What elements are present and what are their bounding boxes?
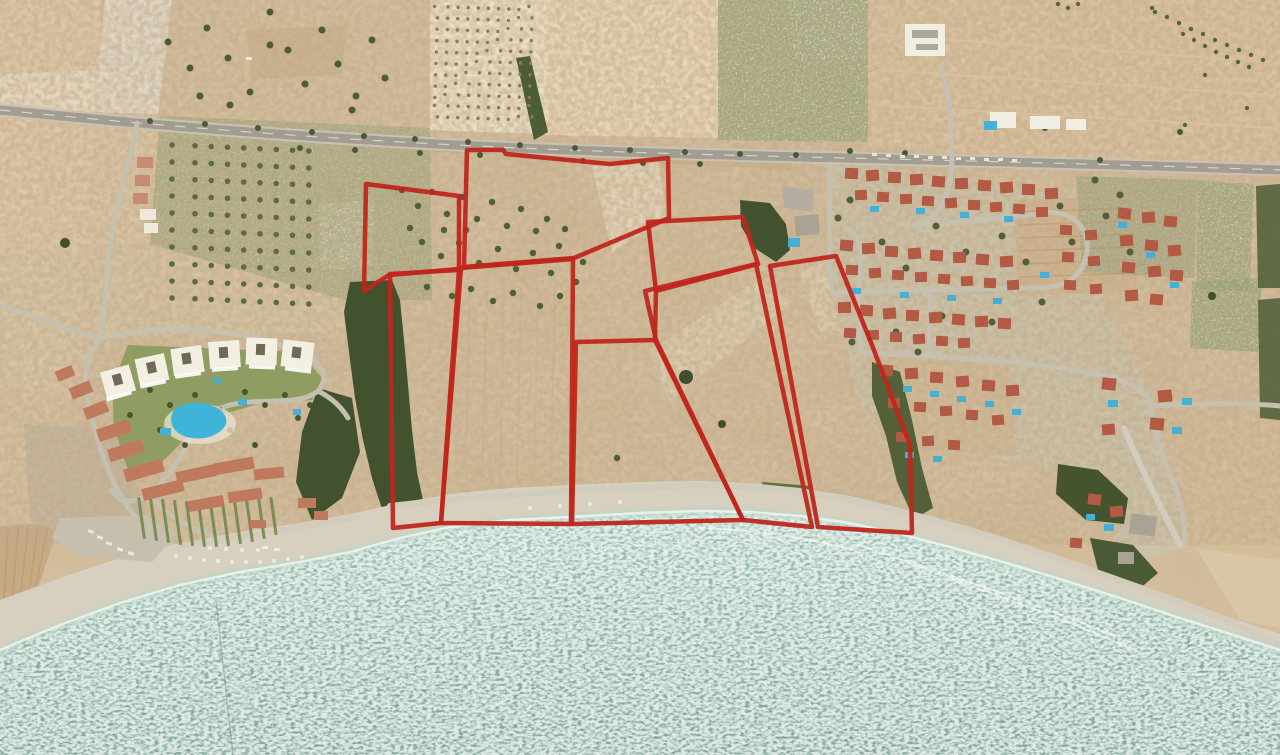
orchard-grid-top-dot [446,17,449,20]
parked-cars-highway-item [914,155,919,158]
orchard-grid-top-dot [528,84,531,87]
lone-trees-dot [1208,292,1216,300]
orchard-grid-left-dot [241,179,247,185]
side-roads [1151,404,1280,406]
orchard-grid-left-dot [257,146,263,152]
olive-trees-parcel-dot [556,243,562,249]
orchard-grid-left-dot [306,250,312,256]
tree-rows-ne-dot [1189,27,1193,31]
tree-rows-ne-dot [1237,48,1241,52]
orchard-grid-top-dot [454,74,457,77]
orchard-grid-top-dot [466,17,469,20]
village-trees-dot [1117,192,1124,199]
village-houses-item [1062,252,1075,263]
orchard-grid-top-dot [488,72,491,75]
orchard-grid-top-dot [445,51,448,54]
orchard-grid-top-dot [485,49,488,52]
orchard-grid-top-dot [517,107,520,110]
village-houses-item [1000,256,1014,268]
beach-umbrellas-dot [208,546,212,550]
orchard-grid-top-dot [455,40,458,43]
scattered-trees-nw-dot [349,107,356,114]
orchard-grid-left-dot [306,267,312,273]
village-pools-item [933,456,942,462]
village-houses-item [888,172,901,183]
tree-strip [1258,298,1280,420]
orchard-grid-top-dot [530,115,533,118]
tree-rows-ne-dot [1225,43,1229,47]
scattered-trees-nw-dot [227,102,234,109]
beach-umbrellas-dot [202,558,206,562]
village-houses-item [1036,207,1048,217]
village-houses-item [1110,505,1124,517]
village-trees-dot [999,233,1006,240]
orchard-grid-top-dot [476,117,479,120]
orchard-grid-left-dot [290,283,296,289]
village-houses-item [968,200,980,210]
orchard-grid-top-dot [476,29,479,32]
orchard-grid-left-dot [208,212,214,218]
scattered-trees-nw-dot [247,89,254,96]
orchard-grid-left-dot [192,245,198,251]
orchard-grid-left-dot [257,214,263,220]
orchard-grid-top-dot [528,96,531,99]
orchard-grid-top-dot [509,38,512,41]
resort-villa-courts-item [219,347,229,359]
orchard-grid-top-dot [456,28,459,31]
tree-rows-ne-dot [1192,38,1196,42]
village-houses-item [1168,245,1182,257]
orchard-grid-top-dot [435,50,438,53]
orchard-grid-top-dot [498,61,501,64]
village-houses-item [1150,293,1164,305]
orchard-grid-top-dot [487,94,490,97]
north-buildings-item [905,24,945,56]
orchard-grid-top-dot [466,29,469,32]
orchard-grid-left-dot [290,181,296,187]
orchard-grid-left-dot [208,246,214,252]
village-houses-item [883,308,897,320]
orchard-grid-top-dot [435,28,438,31]
village-houses-item [1164,215,1178,227]
village-houses-item [1007,280,1020,291]
orchard-grid-top-dot [436,16,439,19]
orchard-grid-left-dot [192,194,198,200]
resort-palms-dot [192,392,198,398]
village-houses-item [952,314,966,326]
orchard-grid-left-dot [290,215,296,221]
orchard-grid-top-dot [467,6,470,9]
orchard-grid-left-dot [257,180,263,186]
orchard-grid-left-dot [290,147,296,153]
village-houses-item [1006,385,1020,397]
scattered-trees-nw-dot [353,93,360,100]
roadside-trees-dot [309,129,315,135]
resort-palms-dot [295,415,301,421]
roadside-trees-dot [737,151,743,157]
orchard-grid-left-dot [225,229,231,235]
village-houses-item [929,312,943,324]
orchard-grid-left-dot [306,233,312,239]
orchard-grid-top-dot [476,40,479,43]
orchard-grid-left-dot [290,300,296,306]
orchard-grid-left-dot [241,281,247,287]
roadside-trees-dot [572,145,578,151]
orchard-grid-left-dot [273,181,279,187]
roadside-trees-dot [477,152,483,158]
olive-trees-parcel-dot [614,455,620,461]
olive-trees-parcel-dot [444,211,450,217]
orchard-grid-top-dot [488,83,491,86]
village-houses-item [915,272,927,282]
village-grey-roofs-item [1129,513,1158,536]
orchard-grid-top-dot [517,16,520,19]
beach-umbrellas-dot [188,556,192,560]
village-houses-item [1122,261,1136,273]
orchard-grid-top-dot [456,116,459,119]
roadside-trees-dot [255,125,261,131]
vineyard-texture [1196,180,1254,292]
village-pools-item [1086,514,1095,520]
orchard-grid-top-dot [446,5,449,8]
resort-terracotta-blocks-item [250,520,266,528]
village-houses-item [1064,280,1077,291]
roadside-trees-dot [627,147,633,153]
village-houses-item [958,338,970,348]
orchard-grid-top-dot [527,5,530,8]
north-buildings-item [1030,116,1060,129]
tree-rows-ne-dot [1214,50,1218,54]
tree-rows-ne-dot [1165,15,1169,19]
village-houses-item [1170,270,1184,282]
village-houses-item [913,334,926,345]
orchard-grid-top-dot [446,104,449,107]
orchard-grid-left-dot [241,264,247,270]
olive-trees-parcel-dot [530,250,536,256]
village-houses-item [844,328,857,339]
tree-strip [1256,184,1280,288]
roadside-trees-dot [465,139,471,145]
orchard-grid-left-dot [192,160,198,166]
orchard-grid-left-dot [192,211,198,217]
orchard-grid-top-dot [434,62,437,65]
village-pools-item [1170,282,1179,288]
village-houses-item [932,176,946,188]
orchard-grid-top-dot [519,61,522,64]
orchard-grid-top-dot [456,17,459,20]
village-pools-item [1118,222,1127,228]
orchard-grid-left-dot [306,182,312,188]
village-houses-item [1117,207,1131,219]
roadside-trees-dot [847,148,853,154]
scattered-trees-nw-dot [187,65,194,72]
village-trees-dot [933,223,940,230]
village-pools-item [1108,400,1118,407]
orchard-grid-left-dot [208,229,214,235]
orchard-grid-top-dot [519,50,522,53]
tree-rows-ne-dot [1203,73,1207,77]
fine-speckle [0,0,1280,545]
village-houses-item [1145,240,1159,252]
tree-rows-ne-dot [1177,21,1181,25]
orchard-grid-top-dot [477,6,480,9]
orchard-grid-top-dot [454,82,457,85]
village-pools-item [1004,216,1013,222]
side-roads [830,164,832,293]
orchard-grid-left-dot [257,282,263,288]
village-houses-item [1090,284,1103,295]
parked-cars-beach-item [274,548,280,551]
tree-rows-ne-dot [1225,55,1229,59]
resort-small-pools-item [293,409,301,415]
parked-cars-highway-item [900,155,905,158]
orchard-grid-left-dot [273,249,279,255]
orchard-grid-left-dot [273,164,279,170]
orchard-grid-top-dot [464,71,467,74]
scattered-trees-nw-dot [319,27,326,34]
village-houses-item [892,270,905,281]
olive-trees-parcel-dot [580,259,586,265]
orchard-grid-top-dot [444,73,447,76]
village-trees-dot [849,339,856,346]
orchard-grid-top-dot [467,105,470,108]
scattered-trees-nw-dot [197,93,204,100]
parked-cars-highway-item [956,157,961,160]
orchard-grid-top-dot [518,73,521,76]
village-houses-item [846,265,858,275]
orchard-grid-left-dot [225,161,231,167]
orchard-grid-left-dot [290,198,296,204]
orchard-grid-top-dot [497,117,500,120]
resort-villa-courts-item [291,346,301,358]
orchard-grid-top-dot [475,60,478,63]
orchard-grid-top-dot [488,60,491,63]
village-houses-item [885,246,898,257]
village-houses-item [976,254,990,266]
beach-umbrellas-dot [256,548,260,552]
village-houses-item [966,410,979,421]
resort-palms-dot [307,402,313,408]
orchard-grid-left-dot [169,261,175,267]
roadside-trees-dot [352,147,358,153]
village-houses-item [992,415,1005,426]
village-trees-dot [1057,203,1064,210]
village-houses-item [890,332,902,342]
orchard-grid-top-dot [529,50,532,53]
orchard-grid-left-dot [257,197,263,203]
parked-cars-highway-item [942,156,947,159]
orchard-grid-top-dot [509,50,512,53]
orchard-grid-left-dot [241,196,247,202]
village-pools-item [1104,524,1114,531]
parked-cars-beach-item [246,57,252,60]
orchard-grid-left-dot [241,162,247,168]
beach-umbrellas-dot [528,506,532,510]
orchard-grid-top-dot [506,27,509,30]
orchard-grid-left-dot [225,246,231,252]
orchard-grid-top-dot [498,83,501,86]
orchard-grid-top-dot [486,18,489,21]
orchard-grid-left-dot [306,199,312,205]
orchard-grid-left-dot [225,195,231,201]
roadside-trees-dot [147,118,153,124]
beach-umbrellas-dot [588,502,592,506]
roadside-houses-item [133,193,148,204]
village-houses-item [922,196,935,207]
olive-trees-parcel-dot [548,270,554,276]
village-pools-item [788,238,800,247]
orchard-grid-top-dot [518,95,521,98]
village-houses-item [855,190,868,201]
orchard-grid-left-dot [208,144,214,150]
orchard-grid-top-dot [444,85,447,88]
parked-cars-highway-item [872,153,877,156]
beach-umbrellas-dot [300,555,304,559]
parked-cars-highway-item [928,156,933,159]
orchard-grid-left-dot [306,165,312,171]
orchard-grid-top-dot [530,28,533,31]
olive-trees-parcel-dot [468,286,474,292]
orchard-grid-left-dot [192,177,198,183]
roadside-trees-dot [682,149,688,155]
village-houses-item [1022,184,1035,195]
village-houses-item [975,316,988,327]
orchard-grid-left-dot [241,145,247,151]
orchard-grid-top-dot [443,93,446,96]
orchard-grid-left-dot [208,161,214,167]
resort-palms-dot [182,442,188,448]
orchard-grid-top-dot [508,72,511,75]
orchard-grid-left-dot [273,300,279,306]
village-pools-item [957,396,966,402]
orchard-grid-left-dot [306,284,312,290]
orchard-grid-top-dot [433,96,436,99]
roadside-trees-dot [417,150,423,156]
orchard-grid-top-dot [465,63,468,66]
orchard-grid-top-dot [528,73,531,76]
orchard-grid-top-dot [477,94,480,97]
orchard-grid-top-dot [520,27,523,30]
village-houses-item [908,248,922,260]
orchard-grid-left-dot [290,249,296,255]
village-pools-item [993,298,1002,304]
orchard-grid-top-dot [465,51,468,54]
orchard-grid-left-dot [225,297,231,303]
scattered-trees-nw-dot [302,81,309,88]
village-houses-item [940,406,953,417]
orchard-grid-left-dot [241,230,247,236]
roadside-houses-item [137,157,153,168]
village-houses-item [955,178,968,189]
roadside-trees-dot [1097,157,1103,163]
beach-umbrellas-dot [286,557,290,561]
orchard-grid-top-dot [527,104,530,107]
orchard-grid-left-dot [169,278,175,284]
orchard-grid-top-dot [517,115,520,118]
village-houses-item [862,243,876,255]
village-trees-dot [915,349,922,356]
roadside-trees-dot [361,133,367,139]
village-houses-item [984,278,996,288]
resort-small-pools-item [238,399,247,405]
parked-cars-highway-item [886,154,891,157]
village-houses-item [930,250,944,262]
village-trees-dot [835,215,842,222]
orchard-grid-top-dot [475,52,478,55]
resort-palms-dot [167,402,173,408]
roadside-trees-dot [297,145,303,151]
olive-trees-parcel-dot [419,239,425,245]
village-houses-item [1000,182,1014,194]
beach-umbrellas-dot [174,554,178,558]
beach-umbrellas-dot [244,560,248,564]
orchard-grid-top-dot [478,71,481,74]
beach-umbrellas-dot [558,504,562,508]
olive-trees-parcel-dot [537,303,543,309]
village-trees-dot [1023,259,1030,266]
orchard-grid-top-dot [497,7,500,10]
orchard-grid-left-dot [169,227,175,233]
orchard-grid-left-dot [225,144,231,150]
orchard-grid-left-dot [169,176,175,182]
resort-villa-courts-item [181,352,191,364]
beach-umbrellas-dot [272,559,276,563]
satellite-map-image [0,0,1280,755]
olive-trees-parcel-dot [518,206,524,212]
orchard-grid-left-dot [273,232,279,238]
orchard-grid-left-dot [257,163,263,169]
tree-rows-ne-dot [1181,32,1185,36]
rubble [782,186,814,212]
village-houses-item [900,194,912,204]
vineyard-texture [1190,278,1262,352]
roadside-trees-dot [412,136,418,142]
village-trees-dot [1103,213,1110,220]
orchard-grid-left-dot [241,213,247,219]
village-houses-item [922,436,935,447]
olive-trees-parcel-dot [544,216,550,222]
village-houses-item [1120,234,1134,246]
orchard-grid-left-dot [225,280,231,286]
orchard-grid-top-dot [498,72,501,75]
orchard-grid-left-dot [192,296,198,302]
beach-umbrellas-dot [618,500,622,504]
orchard-grid-top-dot [436,115,439,118]
village-houses-item [961,276,974,287]
village-houses-item [866,170,880,182]
orchard-grid-top-dot [444,62,447,65]
orchard-grid-top-dot [486,117,489,120]
scattered-trees-nw-dot [335,61,342,68]
orchard-grid-top-dot [445,39,448,42]
orchard-grid-left-dot [290,164,296,170]
orchard-grid-top-dot [486,29,489,32]
orchard-grid-top-dot [446,116,449,119]
village-houses-item [1045,188,1059,200]
orchard-grid-top-dot [487,7,490,10]
olive-trees-parcel-dot [441,227,447,233]
village-houses-item [906,310,919,321]
orchard-grid-top-dot [497,95,500,98]
orchard-grid-top-dot [518,84,521,87]
orchard-grid-left-dot [273,147,279,153]
orchard-grid-top-dot [455,51,458,54]
olive-trees-parcel-dot [533,228,539,234]
orchard-grid-top-dot [496,38,499,41]
orchard-grid-top-dot [435,39,438,42]
scattered-trees-nw-dot [165,39,172,46]
orchard-grid-left-dot [192,143,198,149]
